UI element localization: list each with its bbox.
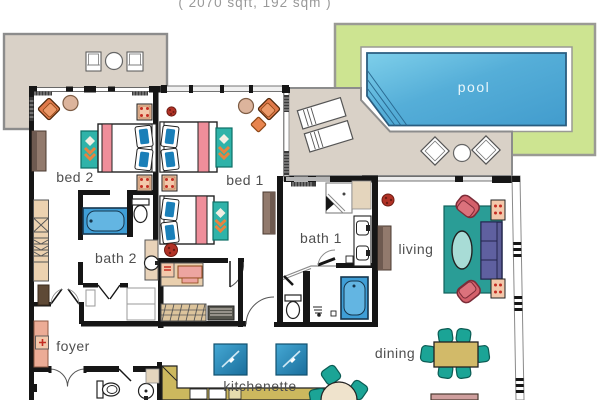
svg-text:bed 2: bed 2 xyxy=(56,169,94,185)
svg-text:bed 1: bed 1 xyxy=(226,172,264,188)
svg-text:living: living xyxy=(399,241,434,257)
svg-text:bath 2: bath 2 xyxy=(95,250,137,266)
svg-text:bath 1: bath 1 xyxy=(300,230,342,246)
svg-text:dining: dining xyxy=(375,345,415,361)
svg-text:pool: pool xyxy=(458,79,490,95)
svg-text:foyer: foyer xyxy=(56,338,90,354)
svg-text:kitchenette: kitchenette xyxy=(223,378,296,394)
svg-text:( 2070 sqft, 192 sqm ): ( 2070 sqft, 192 sqm ) xyxy=(178,0,331,10)
